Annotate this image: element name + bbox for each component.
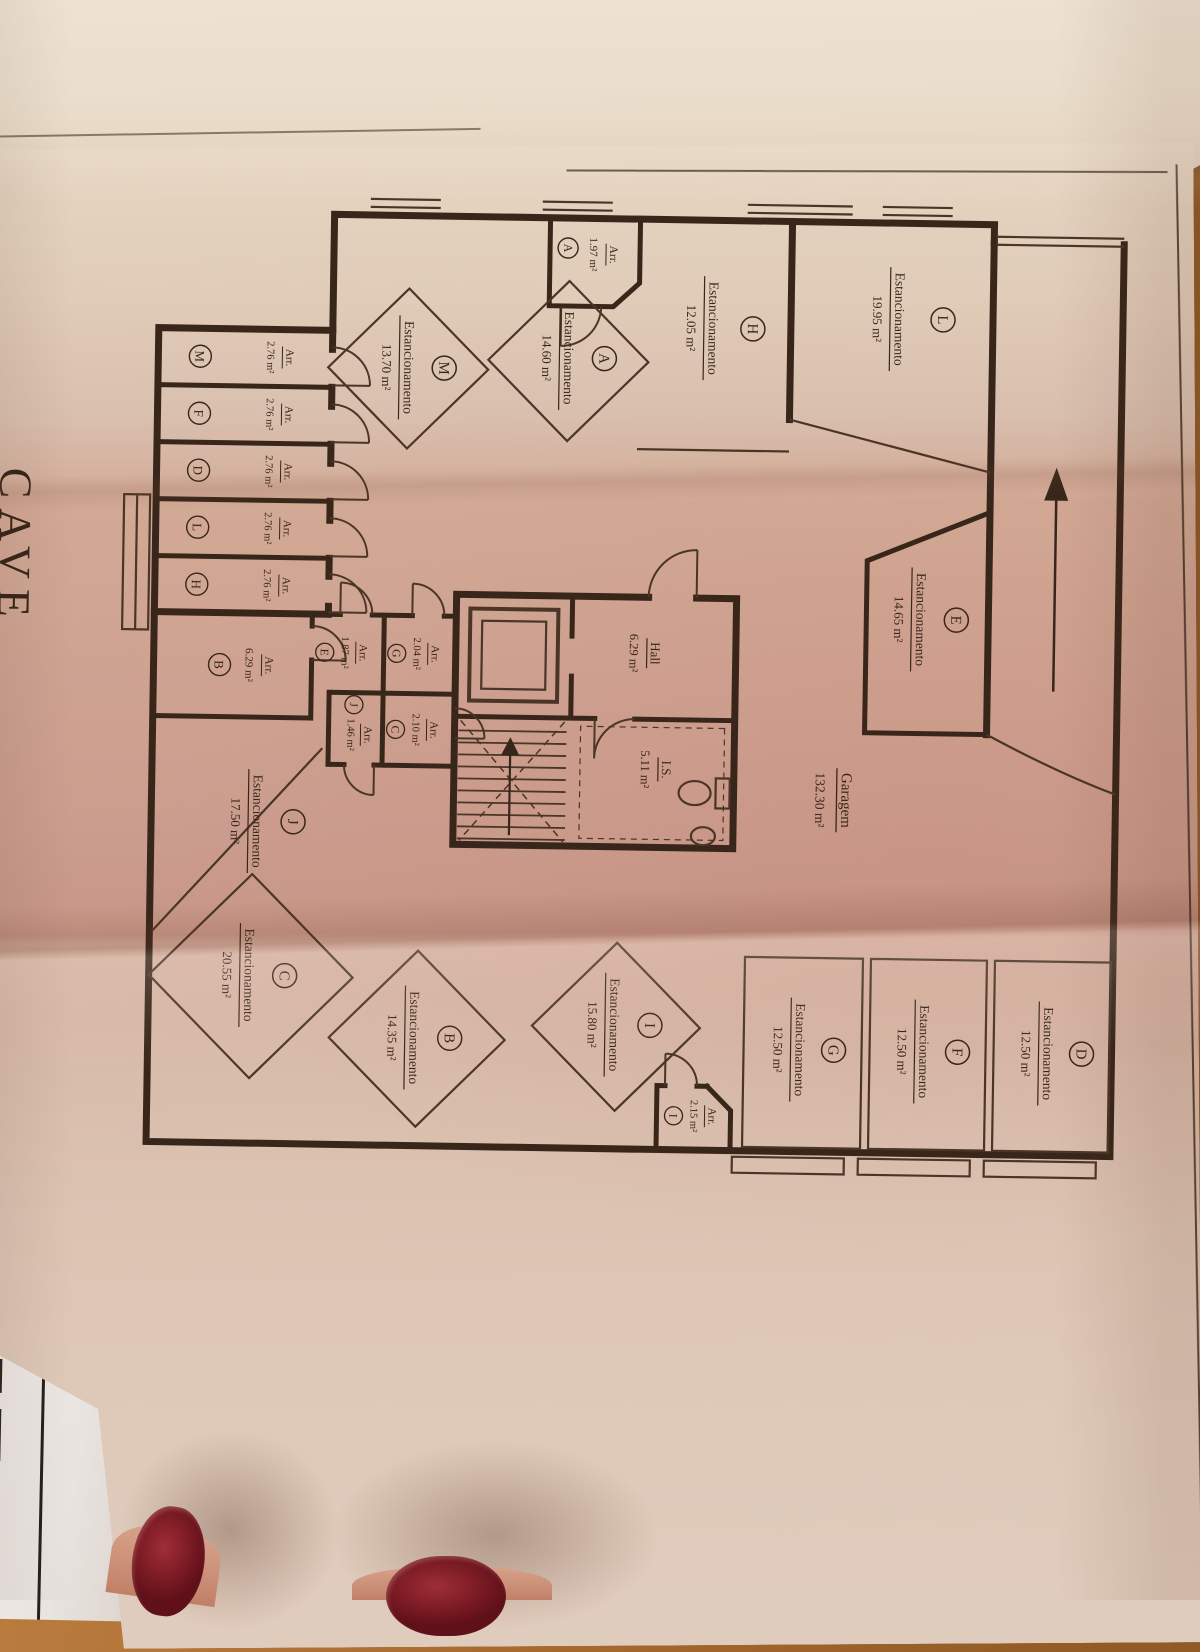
svg-text:Arr.: Arr. — [705, 1108, 717, 1126]
svg-text:Estancionamento: Estancionamento — [561, 311, 577, 404]
svg-text:6.29 m²: 6.29 m² — [626, 634, 641, 673]
svg-text:Arr.: Arr. — [262, 656, 274, 675]
svg-text:Arr.: Arr. — [283, 349, 295, 367]
svg-text:H: H — [744, 323, 760, 334]
svg-text:12.05 m²: 12.05 m² — [684, 305, 700, 352]
svg-text:1.87 m²: 1.87 m² — [338, 636, 350, 668]
svg-text:Arr.: Arr. — [280, 577, 292, 595]
svg-text:Estancionamento: Estancionamento — [249, 775, 265, 868]
storeroom-front-wall — [154, 328, 332, 615]
parking-D-label: D Estancionamento 12.50 m² — [1018, 1001, 1095, 1106]
svg-text:Arr.: Arr. — [282, 406, 294, 424]
parking-H-label: H Estancionamento 12.05 m² — [683, 276, 766, 381]
painted-fingernail — [386, 1556, 506, 1636]
svg-text:D: D — [1072, 1049, 1088, 1060]
labels: Garagem 132.30 m² Hall 6.29 m² I.S. 5.11… — [0, 228, 1106, 1138]
svg-text:Estancionamento: Estancionamento — [705, 282, 721, 375]
svg-text:Estancionamento: Estancionamento — [916, 1005, 932, 1098]
svg-text:B: B — [441, 1033, 457, 1043]
svg-text:17.50 m²: 17.50 m² — [228, 797, 244, 844]
svg-text:15.80 m²: 15.80 m² — [585, 1001, 601, 1048]
svg-text:A: A — [595, 353, 611, 364]
parking-L-label: L Estancionamento 19.95 m² — [869, 267, 956, 372]
parking-A-label: A Estancionamento 14.60 m² — [539, 306, 618, 411]
rotated-floor-plan-drawing: Garagem 132.30 m² Hall 6.29 m² I.S. 5.11… — [0, 0, 1200, 1606]
storage-C-label: Arr. 2.10 m² C — [386, 713, 440, 746]
svg-text:14.60 m²: 14.60 m² — [539, 334, 555, 381]
ramp-direction-arrow-icon — [1053, 482, 1056, 692]
svg-text:2.76 m²: 2.76 m² — [262, 455, 274, 487]
svg-text:Estancionamento: Estancionamento — [241, 928, 257, 1021]
svg-text:2.15 m²: 2.15 m² — [687, 1100, 699, 1132]
svg-text:Arr.: Arr. — [427, 721, 439, 739]
svg-text:2.04 m²: 2.04 m² — [410, 637, 422, 669]
vents-right-wall — [732, 1157, 1096, 1179]
svg-text:Arr.: Arr. — [357, 644, 369, 662]
door-swing-icon — [454, 708, 484, 738]
parking-E-label: E Estancionamento 14.65 m² — [891, 567, 970, 672]
svg-text:Estancionamento: Estancionamento — [406, 991, 422, 1084]
sink-icon — [691, 827, 715, 845]
parking-C-label: C Estancionamento 20.55 m² — [219, 923, 298, 1028]
svg-text:12.50 m²: 12.50 m² — [1018, 1030, 1034, 1077]
svg-text:M: M — [435, 361, 451, 375]
svg-text:E: E — [947, 615, 963, 624]
svg-text:Arr.: Arr. — [429, 645, 441, 663]
svg-text:C: C — [388, 725, 400, 733]
parking-J-label: J Estancionamento 17.50 m² — [227, 769, 306, 874]
fingertip — [352, 1548, 552, 1600]
svg-text:I: I — [666, 1114, 678, 1118]
door-swing-icon — [649, 549, 698, 598]
svg-text:Estancionamento: Estancionamento — [606, 978, 622, 1071]
storage-A-label: Arr. 1.97 m² A — [558, 237, 620, 273]
svg-text:M: M — [192, 350, 207, 362]
door-swing-icon — [329, 518, 368, 557]
storage-I-label: Arr. 2.15 m² I — [664, 1099, 718, 1132]
svg-text:Arr.: Arr. — [281, 463, 293, 481]
ramp-curve — [986, 735, 1117, 795]
svg-text:F: F — [948, 1048, 964, 1057]
svg-text:Garagem: Garagem — [837, 773, 854, 829]
svg-text:G: G — [824, 1045, 840, 1056]
svg-text:132.30 m²: 132.30 m² — [812, 772, 828, 827]
svg-text:Arr.: Arr. — [607, 246, 619, 265]
svg-text:E: E — [318, 649, 330, 656]
parking-M-label: M Estancionamento 13.70 m² — [378, 315, 457, 420]
wall-L-H — [789, 222, 792, 420]
svg-text:Estancionamento: Estancionamento — [792, 1003, 808, 1096]
storeroom-D-label: Arr. 2.76 m² D — [187, 454, 293, 488]
parking-F-label: F Estancionamento 12.50 m² — [894, 999, 971, 1104]
lightwell — [122, 494, 150, 629]
svg-text:Arr.: Arr. — [281, 520, 293, 538]
svg-text:12.50 m²: 12.50 m² — [894, 1028, 910, 1075]
storage-B-label: Arr. 6.29 m² B — [208, 647, 275, 683]
storage-J-label: Arr. 1.46 m² J — [344, 696, 374, 752]
door-swing-icon — [340, 582, 372, 614]
storage-E-label: Arr. 1.87 m² E — [315, 636, 369, 669]
svg-text:2.76 m²: 2.76 m² — [261, 512, 273, 544]
door-swing-icon — [332, 347, 371, 386]
svg-text:B: B — [211, 660, 226, 669]
svg-text:L: L — [190, 523, 205, 531]
room-garage-label: Garagem 132.30 m² — [812, 768, 854, 833]
door-swing-icon — [412, 584, 444, 616]
svg-text:Estancionamento: Estancionamento — [400, 321, 416, 414]
floor-title: CAVE — [0, 467, 42, 627]
svg-text:14.65 m²: 14.65 m² — [891, 596, 907, 643]
svg-text:C: C — [276, 970, 292, 980]
svg-text:Estancionamento: Estancionamento — [913, 573, 929, 666]
storeroom-H-label: Arr. 2.76 m² H — [186, 568, 292, 602]
photo-of-floor-plan: { "photo": { "floor_title": "CAVE", "edg… — [0, 0, 1200, 1600]
svg-text:1.46 m²: 1.46 m² — [344, 718, 356, 750]
door-swing-icon — [328, 574, 367, 613]
svg-text:5.11 m²: 5.11 m² — [638, 750, 653, 788]
svg-text:1.97 m²: 1.97 m² — [587, 237, 600, 272]
svg-text:2.76 m²: 2.76 m² — [264, 341, 276, 373]
storeroom-L-label: Arr. 2.76 m² L — [186, 511, 292, 545]
garage-gate — [996, 237, 1124, 247]
svg-text:D: D — [191, 465, 206, 475]
svg-text:F: F — [191, 409, 206, 416]
svg-text:19.95 m²: 19.95 m² — [870, 296, 886, 343]
storage-G-label: Arr. 2.04 m² G — [387, 637, 441, 670]
svg-text:2.76 m²: 2.76 m² — [263, 398, 275, 430]
svg-text:6.29 m²: 6.29 m² — [242, 648, 255, 683]
svg-text:Estancionamento: Estancionamento — [1040, 1007, 1056, 1100]
svg-text:14.35 m²: 14.35 m² — [384, 1014, 400, 1061]
svg-text:Arr.: Arr. — [361, 726, 373, 744]
svg-text:Estancionamento: Estancionamento — [891, 273, 907, 366]
door-swing-icon — [331, 404, 370, 443]
toilet-icon — [678, 781, 710, 805]
stairs-arrow-head — [501, 737, 519, 755]
door-swing-icon — [344, 765, 374, 795]
storeroom-M-label: Arr. 2.76 m² M — [189, 340, 295, 374]
svg-text:I.S.: I.S. — [659, 760, 674, 778]
svg-text:L: L — [934, 315, 950, 324]
room-wc-label: I.S. 5.11 m² — [638, 750, 675, 789]
svg-text:Hall: Hall — [648, 642, 663, 665]
svg-text:J: J — [347, 702, 359, 707]
storeroom-F-label: Arr. 2.76 m² F — [188, 397, 294, 431]
svg-text:A: A — [561, 244, 575, 253]
door-swing-icon — [330, 461, 369, 500]
floor-plan-svg: Garagem 132.30 m² Hall 6.29 m² I.S. 5.11… — [0, 0, 1200, 1606]
parking-G-label: G Estancionamento 12.50 m² — [770, 997, 847, 1102]
svg-text:H: H — [189, 579, 204, 589]
parking-I-label: I Estancionamento 15.80 m² — [584, 972, 663, 1077]
svg-text:12.50 m²: 12.50 m² — [770, 1026, 786, 1073]
elevator-cab — [481, 621, 546, 690]
ramp-arrow-head — [1044, 468, 1069, 501]
svg-text:2.10 m²: 2.10 m² — [409, 713, 421, 745]
storeroom-dividers — [155, 385, 332, 559]
ramp-inner-wall — [987, 243, 995, 735]
svg-text:I: I — [641, 1023, 657, 1028]
fingertip — [105, 1491, 228, 1607]
svg-text:20.55 m²: 20.55 m² — [219, 951, 235, 998]
svg-text:13.70 m²: 13.70 m² — [379, 344, 395, 391]
svg-text:2.76 m²: 2.76 m² — [261, 569, 273, 601]
svg-text:G: G — [390, 649, 402, 658]
stairs-direction-arrow-icon — [509, 751, 510, 835]
parking-B-label: B Estancionamento 14.35 m² — [384, 985, 463, 1090]
door-swing-icon — [594, 718, 635, 759]
room-hall-label: Hall 6.29 m² — [626, 634, 663, 673]
svg-text:J: J — [284, 819, 300, 825]
toilet-tank — [715, 778, 729, 808]
